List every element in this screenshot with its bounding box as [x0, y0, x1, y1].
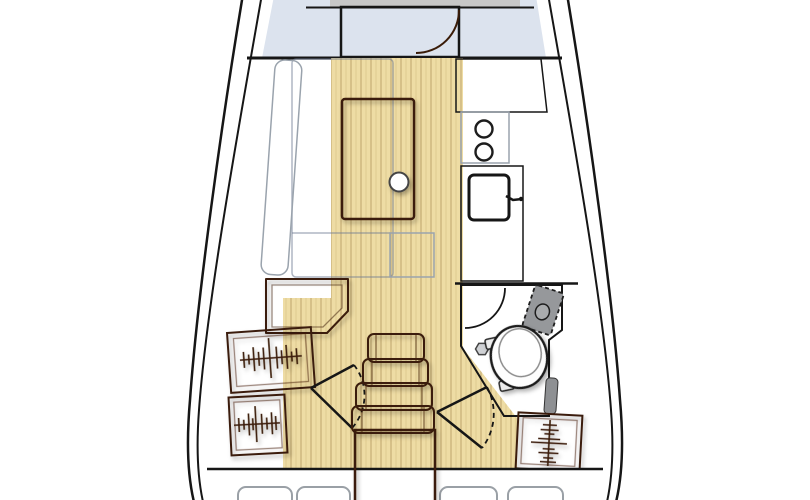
head-cabinet-slot [544, 378, 558, 415]
forward-berth-upholstery [262, 0, 546, 58]
floor-plan-canvas [0, 0, 810, 500]
yacht-layout-plan [0, 0, 810, 500]
stove-burner-icon [476, 121, 493, 138]
table-cupholder-icon [390, 173, 409, 192]
cockpit-cushion [508, 487, 563, 500]
galley-faucet-tip [519, 197, 523, 201]
cockpit-cushion [297, 487, 350, 500]
stove-burner-icon [476, 144, 493, 161]
cockpit-cushion [440, 487, 497, 500]
cockpit-cushion [238, 487, 292, 500]
